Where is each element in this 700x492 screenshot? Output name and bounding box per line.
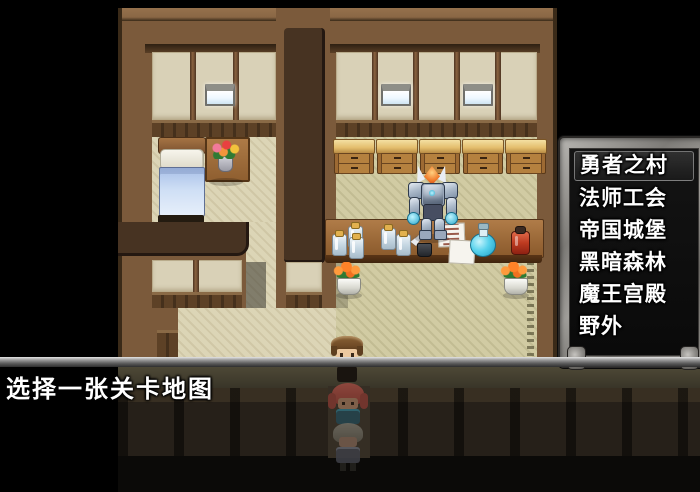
shop-wall-panels: [336, 52, 537, 120]
cabinet: [334, 139, 374, 174]
foot-armor: [419, 230, 432, 240]
fist-gem: [407, 212, 420, 225]
horn-icon: [410, 166, 425, 183]
center-wall-cap: [284, 28, 325, 263]
menu-item-hero-village[interactable]: 勇者之村: [574, 151, 694, 181]
menu-item-label: 帝国城堡: [579, 219, 667, 242]
dim-bottom: [118, 456, 700, 492]
building-outline-right: [553, 8, 557, 358]
blue-potion: [470, 233, 496, 257]
armored-demon-npc[interactable]: [407, 166, 457, 244]
follower-red: [328, 383, 368, 427]
cabinet-drawer: [467, 163, 499, 174]
cabinet-top: [376, 139, 418, 154]
wall-post: [193, 260, 199, 292]
foot-armor: [434, 230, 447, 240]
orange-flowers: [333, 262, 363, 278]
red-face: [338, 398, 358, 409]
cabinet-top: [333, 139, 375, 154]
red-eye: [342, 402, 345, 405]
message-window-border: [0, 357, 700, 367]
map-select-list: 勇者之村 法师工会 帝国城堡 黑暗森林 魔王宫殿 野外: [569, 148, 699, 356]
gray-leg: [350, 463, 356, 471]
cabinet: [506, 139, 546, 174]
cabinet-drawer: [510, 163, 542, 174]
window: [205, 84, 235, 106]
bed-blanket: [159, 167, 205, 218]
gray-face: [339, 437, 357, 447]
red-ponytail: [328, 393, 336, 409]
glass-jar: [349, 237, 364, 259]
cabinet-top: [462, 139, 504, 154]
cabinet-drawer: [338, 163, 370, 174]
wall-post: [495, 52, 501, 120]
glass-jar: [381, 228, 396, 250]
ink-bottle: [417, 243, 432, 257]
window: [381, 84, 411, 106]
chest-gem: [429, 190, 435, 196]
red-ponytail: [360, 393, 368, 409]
orange-flowers: [500, 262, 530, 278]
menu-item-label: 法师工会: [579, 187, 667, 210]
menu-item-label: 勇者之村: [580, 154, 668, 177]
menu-item-empire-castle[interactable]: 帝国城堡: [574, 217, 694, 245]
roof-edge: [118, 8, 557, 21]
bouquet: [209, 139, 241, 159]
red-body: [336, 409, 360, 424]
menu-item-devil-palace[interactable]: 魔王宫殿: [574, 281, 694, 309]
menu-item-mage-guild[interactable]: 法师工会: [574, 185, 694, 213]
horn-icon: [438, 166, 453, 183]
wall-post: [454, 52, 460, 120]
gray-leg: [340, 463, 346, 471]
menu-item-label: 黑暗森林: [579, 251, 667, 274]
menu-item-label: 魔王宫殿: [579, 283, 667, 306]
hero-hair-tuft: [357, 346, 363, 356]
window: [463, 84, 493, 106]
hero-hair-tuft: [331, 346, 337, 356]
cabinet: [463, 139, 503, 174]
game-screen: 勇者之村 法师工会 帝国城堡 黑暗森林 魔王宫殿 野外 选择一张关卡地图: [0, 0, 700, 492]
red-jar: [511, 231, 530, 255]
message-text: 选择一张关卡地图: [6, 369, 214, 404]
menu-item-dark-forest[interactable]: 黑暗森林: [574, 249, 694, 277]
glass-jar: [332, 234, 347, 256]
hero-body-dim: [337, 366, 357, 382]
bed: [158, 137, 204, 224]
center-wall-panel: [286, 262, 322, 292]
menu-item-label: 野外: [579, 315, 623, 338]
doorway-shadow: [246, 262, 266, 312]
menu-item-wilderness[interactable]: 野外: [574, 313, 694, 341]
flower-pot: [337, 278, 361, 295]
flower-pot: [504, 278, 528, 295]
tatami-border: [527, 262, 534, 358]
wall-post: [413, 52, 419, 120]
wall-post: [372, 52, 378, 120]
wall-post: [190, 52, 196, 120]
gray-armor: [336, 447, 360, 463]
follower-gray: [330, 423, 366, 471]
cabinet-top: [419, 139, 461, 154]
red-eye: [351, 402, 354, 405]
table-shadow: [209, 178, 243, 186]
cabinet-top: [505, 139, 547, 154]
map-select-window: 勇者之村 法师工会 帝国城堡 黑暗森林 魔王宫殿 野外: [558, 136, 700, 368]
fist-gem: [445, 212, 458, 225]
lower-wall-cap: [118, 222, 249, 256]
